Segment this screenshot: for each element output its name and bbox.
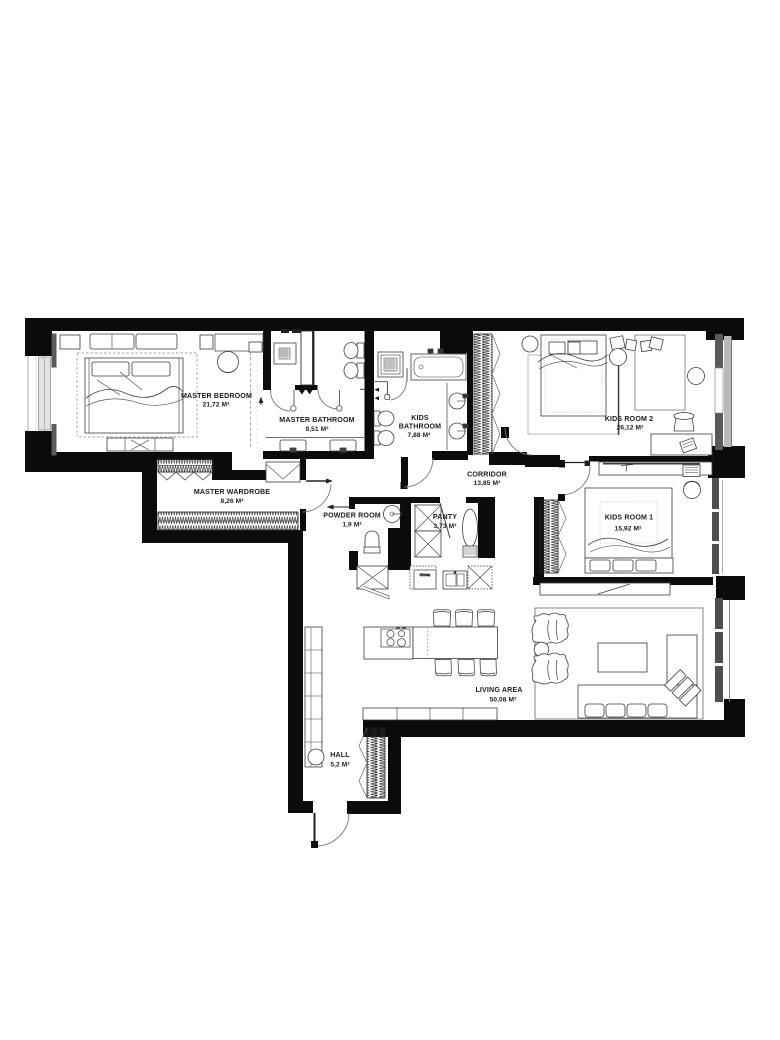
- svg-text:MASTER WARDROBE: MASTER WARDROBE: [194, 488, 270, 496]
- svg-text:PANTY: PANTY: [433, 513, 457, 521]
- svg-text:KIDS: KIDS: [411, 414, 429, 422]
- svg-text:BATHROOM: BATHROOM: [399, 423, 441, 431]
- svg-text:50,08 M²: 50,08 M²: [490, 697, 518, 704]
- svg-text:13,85 M²: 13,85 M²: [474, 480, 502, 487]
- svg-text:8,26 M²: 8,26 M²: [220, 498, 244, 505]
- svg-text:5,2 M²: 5,2 M²: [330, 762, 350, 769]
- svg-text:1,9 M²: 1,9 M²: [342, 522, 362, 529]
- svg-text:HALL: HALL: [330, 751, 350, 759]
- svg-text:LIVING AREA: LIVING AREA: [475, 686, 522, 694]
- svg-text:POWDER ROOM: POWDER ROOM: [323, 512, 381, 520]
- svg-text:KIDS ROOM 1: KIDS ROOM 1: [605, 514, 654, 522]
- svg-text:21,72 M²: 21,72 M²: [203, 402, 231, 409]
- svg-text:CORRIDOR: CORRIDOR: [467, 471, 507, 479]
- svg-text:9,51 M²: 9,51 M²: [305, 426, 329, 433]
- svg-text:15,92 M²: 15,92 M²: [615, 526, 643, 533]
- svg-text:3,73 M²: 3,73 M²: [433, 523, 457, 530]
- svg-text:7,88 M²: 7,88 M²: [407, 432, 431, 439]
- svg-text:KIDS ROOM 2: KIDS ROOM 2: [605, 415, 654, 423]
- svg-text:MASTER BEDROOM: MASTER BEDROOM: [181, 392, 252, 400]
- svg-text:MASTER BATHROOM: MASTER BATHROOM: [279, 416, 354, 424]
- svg-text:26,12 M²: 26,12 M²: [617, 425, 645, 432]
- svg-text:Oven: Oven: [420, 572, 431, 577]
